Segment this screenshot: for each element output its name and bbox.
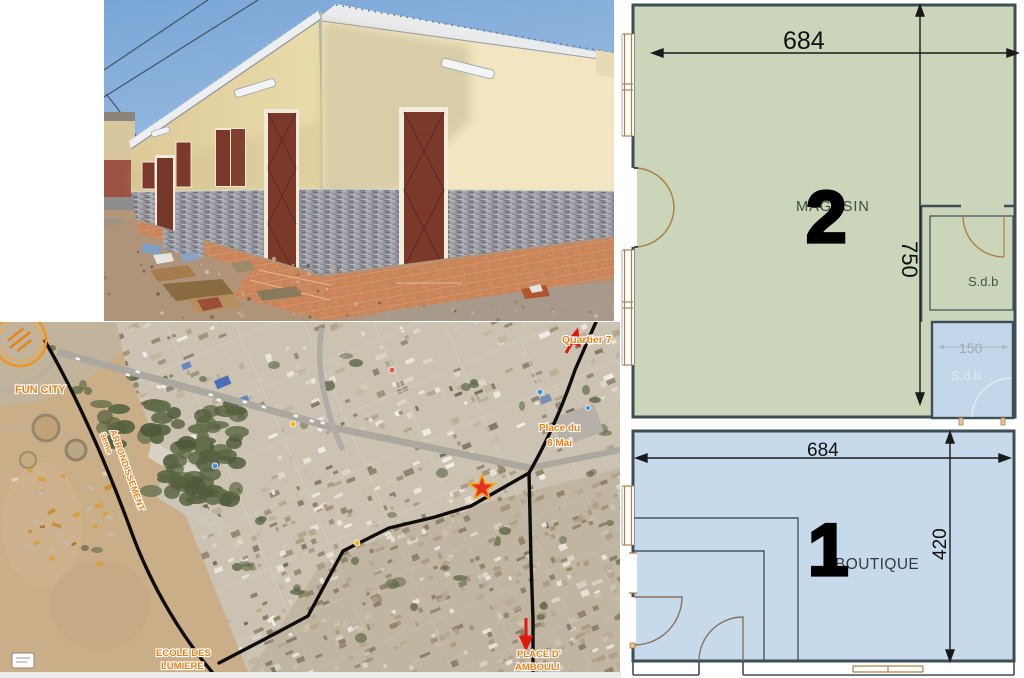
svg-text:420: 420 (930, 528, 951, 560)
svg-text:Place du: Place du (539, 423, 580, 434)
svg-text:2: 2 (806, 177, 847, 258)
svg-text:PLACE D': PLACE D' (517, 649, 561, 660)
svg-text:8 Mai: 8 Mai (547, 438, 572, 449)
svg-text:684: 684 (783, 27, 825, 55)
svg-text:LUMIERE: LUMIERE (161, 661, 204, 672)
svg-text:ECOLE DES: ECOLE DES (156, 648, 211, 659)
svg-text:AMBOULI: AMBOULI (515, 662, 559, 673)
svg-text:S.d.b: S.d.b (968, 274, 998, 289)
svg-text:684: 684 (807, 440, 839, 461)
svg-text:750: 750 (897, 241, 922, 278)
svg-text:S.d.b: S.d.b (951, 368, 981, 383)
svg-text:150: 150 (959, 340, 983, 356)
svg-text:FUN CITY: FUN CITY (15, 384, 66, 396)
svg-text:1: 1 (808, 510, 849, 591)
svg-text:Quartier 7: Quartier 7 (562, 334, 612, 346)
